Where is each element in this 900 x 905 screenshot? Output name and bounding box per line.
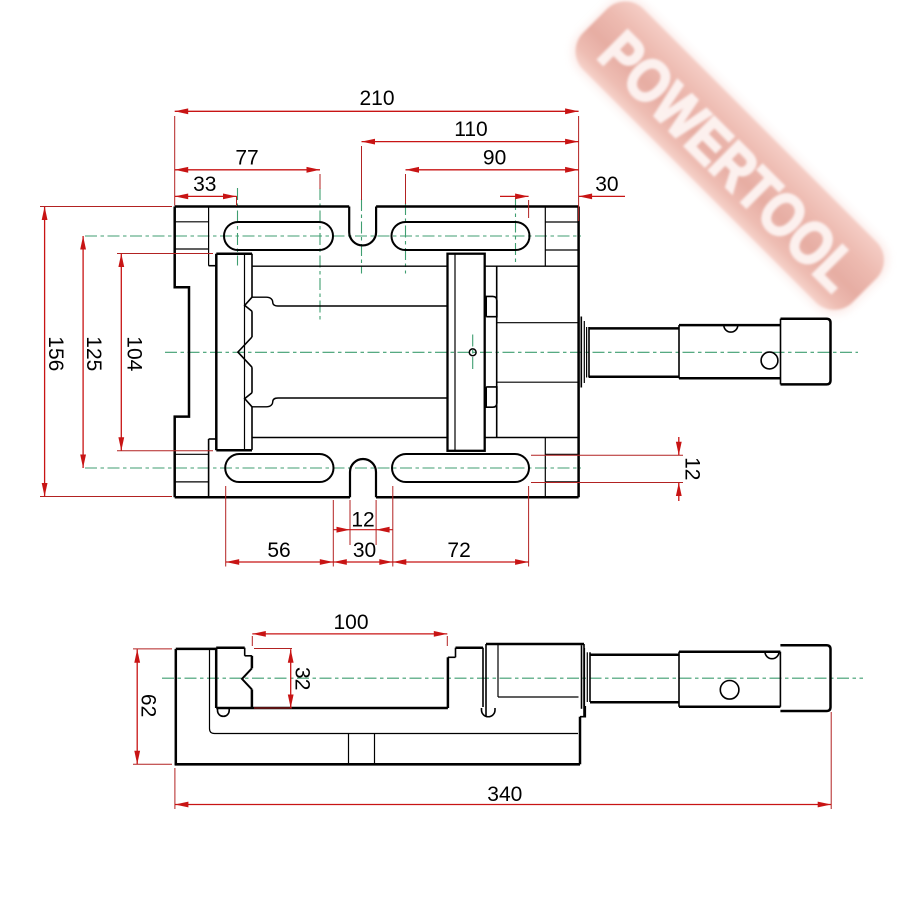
svg-text:32: 32 — [290, 667, 313, 690]
svg-text:210: 210 — [359, 87, 394, 110]
svg-text:33: 33 — [193, 173, 216, 196]
svg-text:110: 110 — [454, 118, 487, 141]
svg-text:104: 104 — [123, 336, 146, 371]
svg-text:12: 12 — [680, 457, 703, 480]
svg-text:30: 30 — [595, 173, 618, 196]
svg-text:62: 62 — [136, 694, 159, 717]
svg-text:30: 30 — [353, 539, 376, 562]
svg-text:12: 12 — [351, 508, 374, 531]
svg-text:100: 100 — [333, 611, 368, 634]
svg-text:77: 77 — [235, 147, 258, 170]
svg-text:56: 56 — [267, 539, 290, 562]
svg-text:125: 125 — [82, 336, 105, 371]
svg-text:72: 72 — [447, 539, 470, 562]
svg-text:90: 90 — [483, 147, 506, 170]
svg-text:340: 340 — [487, 783, 522, 806]
svg-text:156: 156 — [44, 336, 67, 371]
